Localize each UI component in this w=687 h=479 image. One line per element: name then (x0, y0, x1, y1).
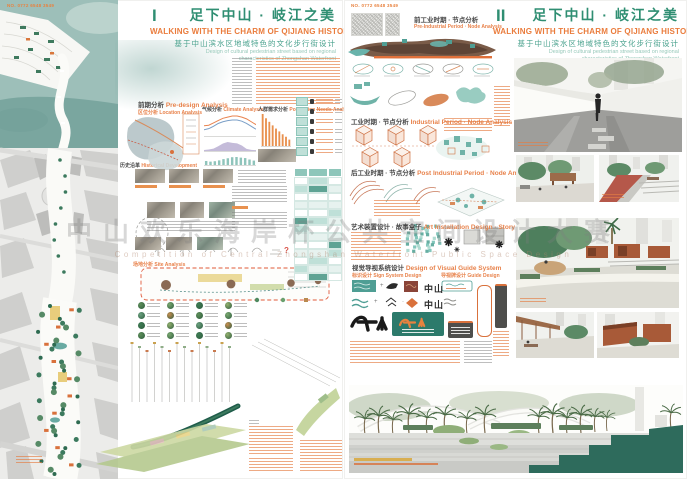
title-english: WALKING WITH THE CHARM OF QIJIANG HISTOR… (493, 27, 679, 36)
plant-palette-item (138, 302, 160, 309)
plant-palette-item (225, 322, 247, 329)
plant-palette-item (167, 312, 189, 319)
render-container-plaza (516, 218, 679, 308)
medallion-icon: ❋ (444, 236, 453, 249)
medallion-icon: ❋ (495, 240, 503, 251)
needs-row (296, 136, 342, 146)
timeline-label-chip (203, 185, 225, 188)
plant-palette (138, 302, 238, 342)
board-panel-1: NO. 0772 6548 3549 I 足下中山 · 岐江之美 WALKING… (0, 0, 343, 479)
render-caption-placeholder (518, 142, 548, 148)
section-caption (354, 458, 438, 465)
dot-icon: · (402, 299, 404, 305)
history-text-placeholder (147, 221, 235, 233)
margin-note-placeholder (493, 331, 509, 357)
logo-text: 中山 (424, 282, 444, 295)
climate-rainfall-chart (204, 139, 256, 151)
section-art-installation: 艺术装置设计 · 故事盒子 Art Installation Design · … (351, 221, 529, 231)
needs-row (296, 116, 342, 126)
section-cn: 后工业时期 · 节点分析 (351, 170, 415, 177)
population-needs-chart (261, 113, 291, 147)
section-cn: 视觉导视系统设计 (352, 265, 404, 272)
margin-note-placeholder (494, 86, 510, 126)
history-photo (166, 237, 192, 250)
plant-palette-item (138, 332, 160, 339)
legend-list-placeholder (249, 458, 293, 472)
section-visual-guide: 视觉导视系统设计 Design of Visual Guide System (352, 262, 501, 272)
needs-row (296, 126, 342, 136)
plant-palette-item (196, 302, 218, 309)
question-mark-icon: ? (284, 246, 289, 255)
section-cn: 工业时期 · 节点分析 (351, 119, 409, 126)
history-photo (180, 202, 204, 218)
history-photo (147, 202, 175, 218)
plant-palette-item (225, 302, 247, 309)
climate-sunshine-chart (204, 153, 256, 163)
guide-note-placeholder (350, 341, 460, 363)
render-pergola-walk (516, 312, 594, 358)
legend-list-placeholder (300, 440, 342, 472)
plant-palette-item (196, 312, 218, 319)
history-photo (169, 169, 199, 183)
section-en: Art Installation Design · Story Box (424, 224, 529, 231)
plant-palette-item (167, 322, 189, 329)
legend-list-placeholder (249, 426, 293, 454)
plant-palette-item (225, 332, 247, 339)
history-photo (203, 169, 233, 183)
history-photo (135, 169, 165, 183)
logo-text: 中山 (424, 298, 444, 311)
subtitle-english-line1: Design of cultural pedestrian street bas… (493, 49, 679, 56)
site-photo (258, 149, 296, 162)
strategy-flow-table (294, 168, 342, 281)
needs-row (296, 146, 342, 156)
guide-sign-board (448, 321, 473, 338)
section-en: Design of Visual Guide System (406, 265, 502, 272)
guide-sign-outline (477, 285, 492, 337)
section-sign-design: 标识设计 Sign System Design (352, 272, 421, 279)
subtitle-chinese: 基于中山滨水区地域特色的文化步行街设计 (493, 38, 679, 49)
badge-text-placeholder (402, 329, 434, 334)
guide-note-placeholder (464, 341, 492, 363)
needs-row (296, 96, 342, 106)
render-corten-pavilion (597, 312, 679, 358)
caption-line-placeholder (354, 463, 438, 465)
art-note-placeholder (351, 232, 401, 260)
sign-text-placeholder (451, 327, 470, 335)
needs-icon-table (296, 96, 342, 156)
plant-palette-item (138, 312, 160, 319)
render-caption-placeholder (602, 194, 624, 199)
title-block: 足下中山 · 岐江之美 WALKING WITH THE CHARM OF QI… (493, 5, 679, 63)
title-chinese: 足下中山 · 岐江之美 (493, 5, 679, 25)
section-en: Sign System Design (373, 273, 421, 279)
plant-palette-item (138, 322, 160, 329)
section-cn: 艺术装置设计 · 故事盒子 (351, 224, 422, 231)
history-text-placeholder (232, 212, 287, 228)
section-cn: 标识设计 (352, 273, 372, 279)
board-panel-2: NO. 0772 6548 3549 前工业时期 · 节点分析 Pre-Indu… (344, 0, 687, 479)
history-text-placeholder (232, 186, 287, 204)
timeline-label-chip (232, 206, 248, 209)
render-caption-placeholder (520, 298, 546, 304)
industrial-note-placeholder (444, 118, 492, 132)
plant-palette-item (167, 302, 189, 309)
section-cn: 导视牌设计 (441, 273, 466, 279)
timeline-label-chip (135, 185, 157, 188)
design-board-canvas: NO. 0772 6548 3549 I 足下中山 · 岐江之美 WALKING… (0, 0, 687, 479)
legend-header-placeholder (249, 420, 259, 424)
plus-icon: + (374, 299, 378, 305)
plus-icon: + (380, 283, 384, 289)
needs-row (296, 106, 342, 116)
render-courtyard (514, 58, 682, 152)
section-post-industrial: 后工业时期 · 节点分析 Post Industrial Period · No… (351, 167, 535, 177)
medallion-small-icon: ✳ (454, 246, 460, 254)
post-industrial-note-placeholder (374, 200, 420, 216)
render-plaza-pavilion (516, 155, 594, 202)
render-red-track (599, 155, 679, 202)
brand-badge (392, 312, 444, 336)
section-en: Guide Design (467, 273, 499, 279)
plant-palette-item (167, 332, 189, 339)
plant-palette-item (196, 322, 218, 329)
climate-temperature-chart (204, 113, 256, 137)
section-guide-design: 导视牌设计 Guide Design (441, 272, 500, 279)
caption-line-placeholder (354, 458, 412, 461)
dot-icon: · (414, 283, 416, 289)
plant-palette-item (196, 332, 218, 339)
history-photo (135, 237, 161, 250)
guide-sign-board (495, 284, 507, 328)
timeline-label-chip (169, 185, 191, 188)
history-photo (197, 237, 223, 250)
history-text-placeholder (238, 170, 286, 184)
plant-palette-item (225, 312, 247, 319)
